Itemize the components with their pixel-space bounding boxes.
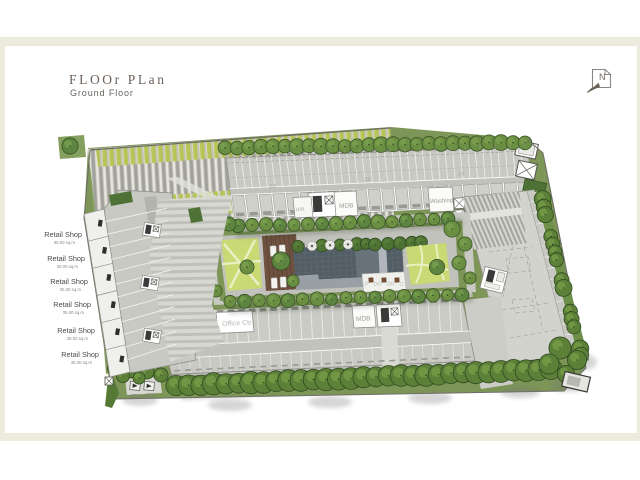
svg-text:24: 24 xyxy=(458,171,466,177)
svg-text:EPU: EPU xyxy=(131,393,140,398)
svg-text:MDB: MDB xyxy=(356,315,371,323)
svg-text:35.00 sq.m: 35.00 sq.m xyxy=(63,310,85,315)
svg-text:EPU: EPU xyxy=(146,392,155,397)
svg-text:Retail Shop: Retail Shop xyxy=(57,326,95,335)
svg-text:29: 29 xyxy=(269,184,277,190)
svg-text:35.00 sq.m: 35.00 sq.m xyxy=(54,240,76,245)
svg-text:35.00 sq.m: 35.00 sq.m xyxy=(57,264,79,269)
svg-text:Retail Shop: Retail Shop xyxy=(47,254,85,263)
svg-text:35.00 sq.m: 35.00 sq.m xyxy=(71,360,93,365)
svg-text:Retail Shop: Retail Shop xyxy=(44,230,82,239)
svg-text:MDB: MDB xyxy=(339,202,354,210)
svg-text:Retail Shop: Retail Shop xyxy=(50,277,88,286)
svg-text:28: 28 xyxy=(364,177,372,183)
svg-text:N: N xyxy=(599,72,606,82)
svg-text:um: um xyxy=(296,207,305,213)
svg-text:Retail Shop: Retail Shop xyxy=(61,350,99,359)
svg-text:Washing: Washing xyxy=(430,198,453,205)
svg-text:35.00 sq.m: 35.00 sq.m xyxy=(67,336,89,341)
svg-text:Retail Shop: Retail Shop xyxy=(53,300,91,309)
svg-text:35.00 sq.m: 35.00 sq.m xyxy=(60,287,82,292)
